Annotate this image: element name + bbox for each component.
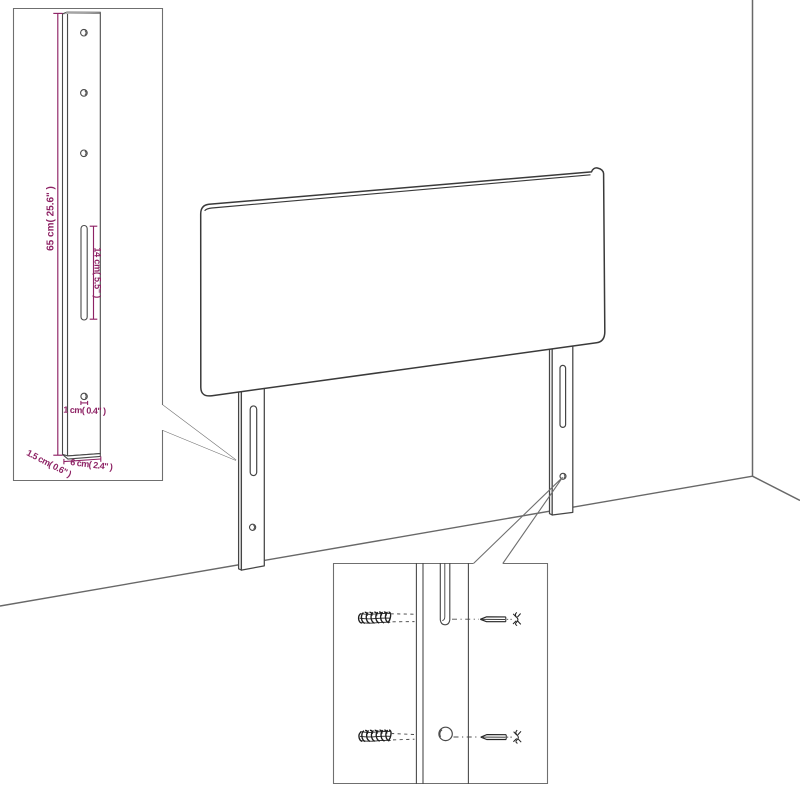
svg-text:14 cm( 5.5" ): 14 cm( 5.5" ) (92, 247, 102, 298)
svg-text:65 cm( 25.6" ): 65 cm( 25.6" ) (45, 186, 56, 251)
svg-text:1 cm( 0.4" ): 1 cm( 0.4" ) (63, 405, 106, 416)
